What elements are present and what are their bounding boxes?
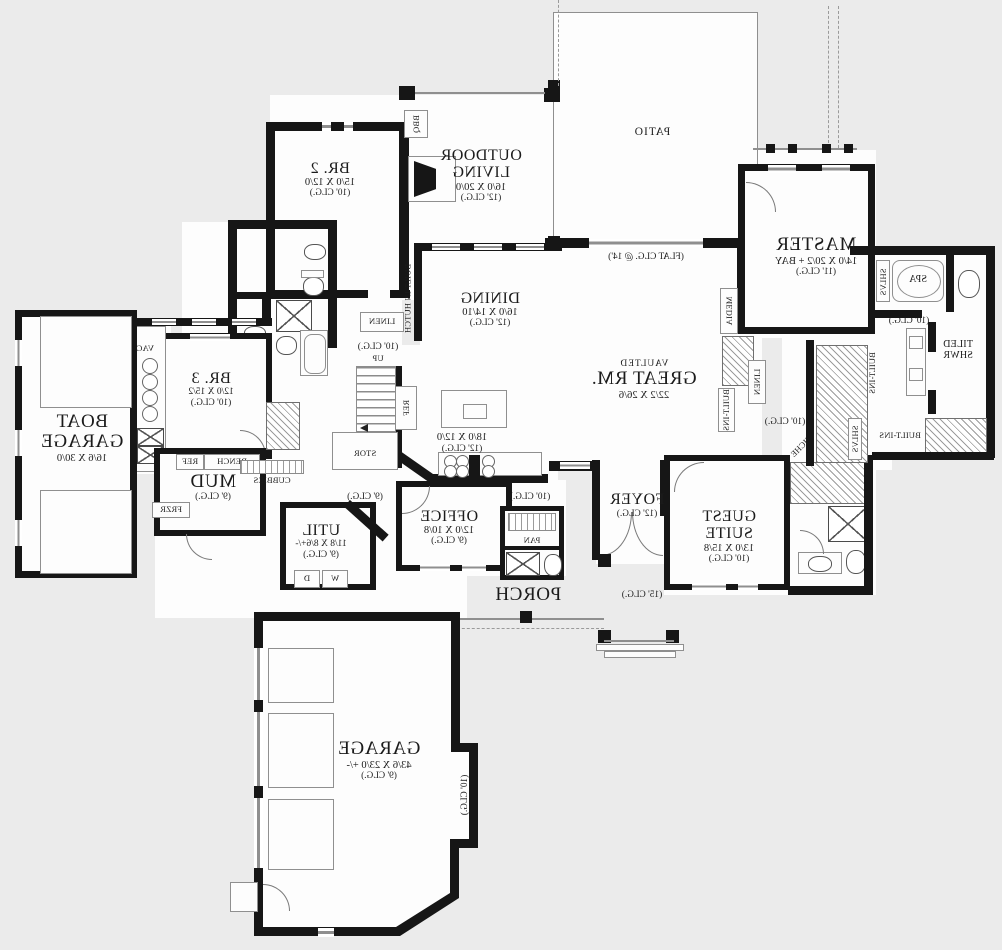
room-name: BR. 2 xyxy=(310,160,350,177)
spa-label: SPA xyxy=(898,274,938,287)
room-dims: 18/0 X 12/0 xyxy=(437,432,487,443)
room-ceil: (9' CLG.) xyxy=(303,550,339,560)
built-in-hutch-text: BUILT-IN HUTCH xyxy=(402,264,412,333)
outdoor-living-label: OUTDOOR LIVING 16/0 X 20/0 (12' CLG.) xyxy=(425,140,537,210)
window xyxy=(462,564,486,571)
office-label: OFFICE 12/0 X 10/8 (9' CLG.) xyxy=(414,504,484,550)
room-name: FOYER xyxy=(610,491,665,508)
media-text: MEDIA xyxy=(724,297,734,326)
built-ins-label: BUILT-INS xyxy=(872,430,928,441)
burner xyxy=(482,465,495,478)
staircase xyxy=(356,366,396,432)
wall xyxy=(228,220,237,348)
window xyxy=(560,462,590,469)
spa-text: SPA xyxy=(909,275,927,286)
bbq-label: BBQ xyxy=(411,109,421,139)
built-ins-text: BUILT-INS xyxy=(867,352,877,394)
boat-garage-door xyxy=(40,316,132,408)
frzr-text: FRZR xyxy=(160,505,182,514)
room-ceil: (10' CLG.) xyxy=(310,188,350,198)
room-ceil: (12' CLG.) xyxy=(470,318,510,328)
built-ins-label: BUILT-INS xyxy=(721,384,731,436)
patio-label: PATIO xyxy=(612,125,692,140)
tiled-shwr-label: TILED SHWR xyxy=(930,338,986,364)
wall xyxy=(928,390,936,414)
outdoor-living-post xyxy=(399,86,415,100)
wall xyxy=(328,220,337,348)
room-ceil: (12' CLG.) xyxy=(617,509,657,519)
room-name: GARAGE xyxy=(338,739,421,760)
room-name: GUEST SUITE xyxy=(692,508,766,543)
linen-label: LINEN xyxy=(362,316,402,328)
hall-ceiling-label: (9' CLG.) xyxy=(340,492,390,502)
window xyxy=(152,319,176,325)
room-dims: 12/0 X 15/2 xyxy=(188,387,233,397)
dryer-label: D xyxy=(296,573,318,584)
outdoor-living-post xyxy=(544,88,560,102)
toilet xyxy=(544,554,562,576)
wall-thin xyxy=(503,546,561,550)
great-room-flat-ceiling-label: (FLAT CLG. @ 14') xyxy=(594,251,698,263)
garage-door-panel xyxy=(268,648,334,703)
window xyxy=(15,520,22,546)
window xyxy=(738,583,758,590)
entry-post xyxy=(598,554,611,567)
cubbies-unit xyxy=(240,460,304,474)
wall xyxy=(788,586,873,595)
cubbies-text: CUBBIES xyxy=(253,476,290,485)
bbq-text: BBQ xyxy=(411,115,421,133)
roof-dash-line xyxy=(828,6,829,148)
shlvs-text: SHLVS xyxy=(878,268,888,295)
cubbies-label: CUBBIES xyxy=(242,476,302,486)
room-ceil: (10' CLG.) xyxy=(191,398,231,408)
entry-steps xyxy=(596,644,684,651)
br2-label: BR. 2 15/0 X 12/0 (10' CLG.) xyxy=(288,152,372,206)
utility-box xyxy=(137,428,164,446)
garage-door-opening xyxy=(254,798,263,868)
flat-ceil-text: (FLAT CLG. @ 14') xyxy=(608,252,684,262)
shwr-text: SHWR xyxy=(943,351,973,362)
range xyxy=(469,455,480,476)
garage-door-opening xyxy=(254,712,263,786)
wall xyxy=(228,220,336,229)
wall xyxy=(928,322,936,352)
stor-text: STOR xyxy=(354,449,376,458)
island-sink xyxy=(463,404,487,419)
closet-hall-ceiling-label: (10' CLG.) xyxy=(760,417,810,427)
wall xyxy=(545,238,589,248)
open-edge-line xyxy=(415,92,545,94)
hall-ceiling-label: (10' CLG.) xyxy=(502,492,558,502)
ref-text: REF xyxy=(401,400,411,416)
sink xyxy=(808,556,832,572)
entry-steps xyxy=(604,651,676,658)
shower xyxy=(506,552,540,576)
wall xyxy=(850,246,994,255)
master-closet xyxy=(925,418,987,456)
room-name: DINING xyxy=(460,290,520,307)
roof-dash-line xyxy=(838,6,839,148)
util-label: UTIL 11/8 X 8/6+/- (9' CLG.) xyxy=(290,518,352,564)
vacuum-equipment xyxy=(142,406,158,422)
toilet xyxy=(276,336,297,355)
window xyxy=(822,165,850,173)
wall xyxy=(806,340,814,466)
great-room-label: VAULTED GREAT RM. 22/2 X 26/6 xyxy=(592,356,696,404)
room-dims: 16/6 X 30/0 xyxy=(57,453,107,464)
bay-post xyxy=(844,144,853,153)
garage-door-panel xyxy=(268,713,334,788)
shlvs-text: SHLVS xyxy=(850,425,860,452)
window xyxy=(420,564,450,571)
window xyxy=(15,430,22,456)
window xyxy=(15,340,22,366)
room-dims: 22/2 X 26/6 xyxy=(619,390,669,401)
wall xyxy=(266,122,408,131)
room-dims: 16/0 X 14/10 xyxy=(462,307,517,318)
sink xyxy=(909,368,923,381)
up-text: UP xyxy=(372,354,383,363)
wall xyxy=(266,122,275,298)
room-ceil: (10' CLG.) xyxy=(709,554,749,564)
sink xyxy=(304,244,326,260)
room-name: OUTDOOR xyxy=(440,147,522,164)
bay-post xyxy=(822,144,831,153)
window xyxy=(692,583,726,590)
room-dims: 16/0 X 20/0 xyxy=(456,182,506,193)
room-ceil: (9' CLG.) xyxy=(195,492,231,502)
guest-closet xyxy=(790,462,866,504)
wall xyxy=(414,243,422,341)
washer-label: W xyxy=(324,573,346,584)
hall-ceiling-label: (10' CLG.) xyxy=(352,342,404,352)
window xyxy=(344,122,353,131)
built-ins-label: BUILT-INS xyxy=(867,347,877,399)
wall xyxy=(592,460,600,560)
room-ceil: (9' CLG.) xyxy=(361,771,397,781)
window xyxy=(192,319,216,325)
bay-post xyxy=(788,144,797,153)
linen-text: LINEN xyxy=(752,369,762,396)
ceiling-text: (9' CLG.) xyxy=(347,492,383,502)
wall xyxy=(262,292,271,324)
room-name: MASTER xyxy=(776,235,857,256)
ref-text: REF xyxy=(182,457,198,466)
bathtub-inner xyxy=(304,334,326,374)
wall xyxy=(872,452,994,460)
vacuum-equipment xyxy=(142,374,158,390)
master-label: MASTER 14/0 X 20/2 + BAY (11' CLG.) xyxy=(766,234,866,278)
ceiling-text: (10' CLG.) xyxy=(765,417,805,427)
room-ceil: (12' CLG.) xyxy=(461,193,501,203)
bay-post xyxy=(766,144,775,153)
window xyxy=(318,928,334,937)
garage-bumpout xyxy=(230,882,258,912)
built-ins-text: BUILT-INS xyxy=(879,431,921,440)
ref-label: REF xyxy=(177,457,203,467)
dryer-text: D xyxy=(304,574,310,583)
room-name: BR. 3 xyxy=(191,370,231,387)
frzr-label: FRZR xyxy=(154,505,188,515)
room-dims: 12/0 X 10/8 xyxy=(424,525,474,536)
room-name2: LIVING xyxy=(452,164,510,181)
stor-label: STOR xyxy=(338,448,392,459)
mud-label: MUD (9' CLG.) xyxy=(184,470,242,504)
dining-label: DINING 16/0 X 14/10 (12' CLG.) xyxy=(443,284,537,334)
pan-text: PAN xyxy=(524,536,541,545)
ref-label: REF xyxy=(401,393,411,423)
ceiling-text: (10' CLG.) xyxy=(358,342,398,352)
window xyxy=(432,244,460,250)
wall xyxy=(946,250,954,312)
window xyxy=(232,319,256,325)
window xyxy=(516,244,544,250)
window xyxy=(474,244,502,250)
foyer-label: FOYER (12' CLG.) xyxy=(604,490,670,520)
shower xyxy=(828,506,868,542)
kitchen-label: 18/0 X 12/0 (12' CLG.) xyxy=(426,430,498,456)
room-ceil: (9' CLG.) xyxy=(431,536,467,546)
media-label: MEDIA xyxy=(724,289,734,333)
room-dims: 13/0 X 15/8 xyxy=(704,543,754,554)
vacuum-equipment xyxy=(142,358,158,374)
linen-label: LINEN xyxy=(752,362,762,402)
room-name: MUD xyxy=(190,472,236,493)
room-dims: 14/0 X 20/2 + BAY xyxy=(775,256,858,267)
linen-text: LINEN xyxy=(369,317,396,326)
br3-closet xyxy=(266,402,300,450)
toilet xyxy=(303,277,324,296)
guest-suite-label: GUEST SUITE 13/0 X 15/8 (10' CLG.) xyxy=(692,502,766,570)
garage-side-ceiling-label: (10' CLG.) xyxy=(460,766,470,824)
room-name: UTIL xyxy=(302,522,340,539)
toilet xyxy=(958,270,980,298)
porch-label: PORCH xyxy=(490,586,566,604)
boat-garage-door xyxy=(40,490,132,574)
pantry-shelves xyxy=(508,513,556,531)
garage-door-panel xyxy=(268,799,334,870)
room-name: OFFICE xyxy=(420,508,478,525)
porch-post xyxy=(520,611,532,623)
garage-door-opening xyxy=(254,648,263,700)
room-ceil: (11' CLG.) xyxy=(796,267,836,277)
entry-edge xyxy=(604,640,674,642)
wall xyxy=(986,246,995,458)
window xyxy=(322,122,331,131)
built-in-hutch-label: BUILT-IN HUTCH xyxy=(403,262,412,336)
stair-arrow xyxy=(360,424,368,432)
room-dims: 43/6 X 23/0 +/- xyxy=(346,760,411,771)
room-name: PORCH xyxy=(495,585,561,606)
up-label: UP xyxy=(366,354,390,364)
roof-dash-line xyxy=(558,0,559,86)
window-band xyxy=(589,239,705,247)
built-ins-text: BUILT-INS xyxy=(721,389,731,431)
entry-ceiling-label: (15' CLG.) xyxy=(612,590,672,601)
room-ceil: (12' CLG.) xyxy=(442,444,482,454)
toilet-tank xyxy=(301,270,324,278)
ceiling-text: (10' CLG.) xyxy=(889,316,929,326)
sink xyxy=(909,336,923,349)
room-dims: 11/8 X 8/6+/- xyxy=(295,539,346,549)
shower xyxy=(276,300,312,332)
ceiling-text: (15' CLG.) xyxy=(622,590,662,600)
room-name: PATIO xyxy=(634,126,671,138)
room-dims: 15/0 X 12/0 xyxy=(305,177,355,188)
room-name: BOAT xyxy=(56,412,108,433)
burner xyxy=(456,465,469,478)
washer-text: W xyxy=(331,574,339,583)
shlvs-label: SHLVS xyxy=(850,419,860,459)
window xyxy=(190,334,230,341)
br3-label: BR. 3 12/0 X 15/2 (10' CLG.) xyxy=(178,368,244,410)
boat-garage-label: BOAT GARAGE 16/6 X 30/0 xyxy=(42,408,122,468)
room-name2: GARAGE xyxy=(41,432,124,453)
vacuum-equipment xyxy=(142,390,158,406)
ceiling-text: (10' CLG.) xyxy=(510,492,550,502)
garage-label: GARAGE 43/6 X 23/0 +/- (9' CLG.) xyxy=(336,736,422,784)
room-name: GREAT RM. xyxy=(591,369,696,390)
window xyxy=(768,165,796,173)
ceiling-text: (10' CLG.) xyxy=(460,775,470,815)
wall xyxy=(864,455,873,595)
toilet xyxy=(846,550,866,574)
shlvs-label: SHLVS xyxy=(878,262,888,302)
floor-plan: BBQ MEDIA BUILT-INS LINEN REF UP (10' CL… xyxy=(0,0,1002,950)
pan-label: PAN xyxy=(510,535,554,546)
